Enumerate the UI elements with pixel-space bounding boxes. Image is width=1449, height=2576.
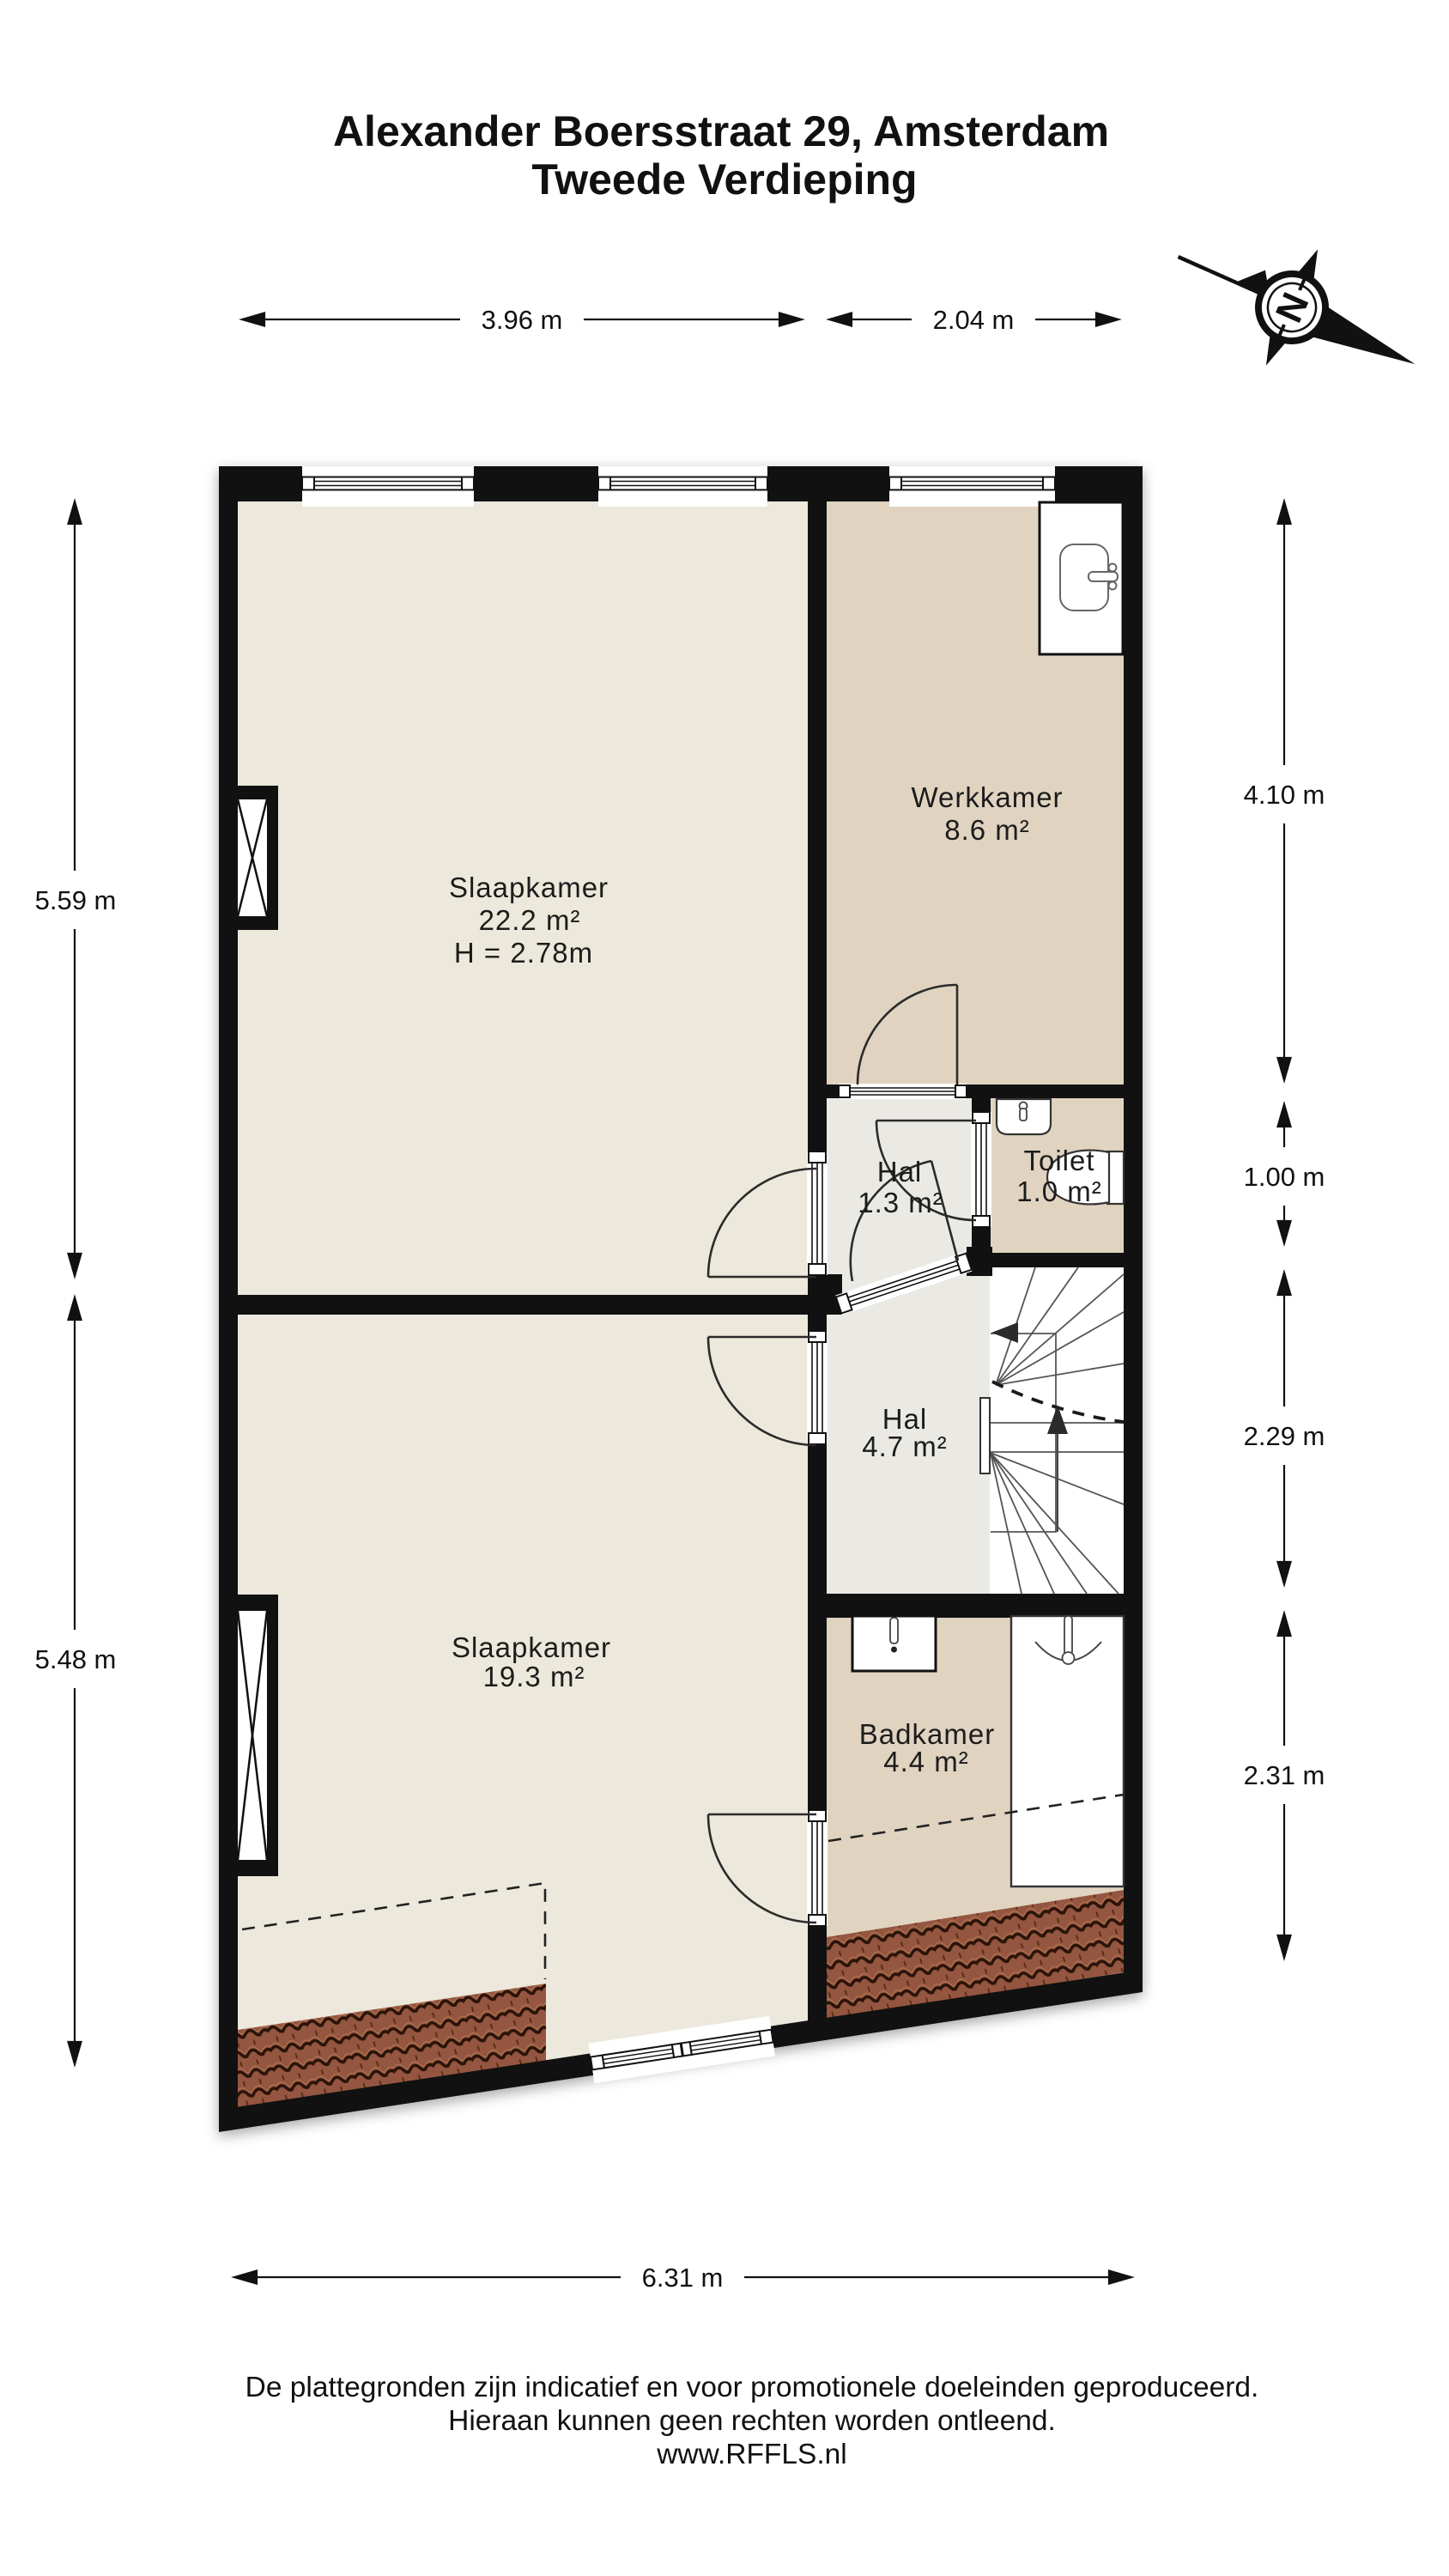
svg-text:5.59 m: 5.59 m: [35, 885, 117, 915]
svg-text:Toilet: Toilet: [1023, 1145, 1094, 1176]
svg-text:Hieraan kunnen geen rechten wo: Hieraan kunnen geen rechten worden ontle…: [448, 2405, 1056, 2437]
svg-text:8.6 m²: 8.6 m²: [944, 814, 1030, 846]
svg-text:4.10 m: 4.10 m: [1244, 780, 1325, 810]
svg-text:H = 2.78m: H = 2.78m: [454, 937, 593, 969]
svg-text:Tweede Verdieping: Tweede Verdieping: [531, 155, 917, 204]
svg-text:6.31 m: 6.31 m: [642, 2263, 724, 2293]
svg-text:3.96 m: 3.96 m: [482, 305, 563, 335]
svg-text:2.04 m: 2.04 m: [933, 305, 1015, 335]
svg-text:1.0 m²: 1.0 m²: [1016, 1176, 1102, 1207]
svg-text:Slaapkamer: Slaapkamer: [449, 872, 609, 903]
svg-text:De plattegronden zijn indicati: De plattegronden zijn indicatief en voor…: [246, 2372, 1259, 2403]
svg-text:Alexander Boersstraat 29, Amst: Alexander Boersstraat 29, Amsterdam: [333, 107, 1109, 155]
svg-text:Werkkamer: Werkkamer: [911, 781, 1063, 813]
svg-text:4.4 m²: 4.4 m²: [883, 1746, 969, 1777]
svg-text:19.3 m²: 19.3 m²: [483, 1661, 585, 1692]
svg-text:4.7 m²: 4.7 m²: [862, 1431, 948, 1462]
svg-text:Hal: Hal: [877, 1156, 923, 1188]
svg-text:5.48 m: 5.48 m: [35, 1644, 117, 1674]
svg-text:1.00 m: 1.00 m: [1244, 1162, 1325, 1192]
svg-text:2.29 m: 2.29 m: [1244, 1421, 1325, 1451]
svg-text:Slaapkamer: Slaapkamer: [452, 1631, 611, 1663]
svg-text:www.RFFLS.nl: www.RFFLS.nl: [656, 2439, 847, 2470]
svg-text:2.31 m: 2.31 m: [1244, 1760, 1325, 1790]
svg-text:22.2 m²: 22.2 m²: [479, 904, 581, 936]
svg-text:1.3 m²: 1.3 m²: [858, 1187, 943, 1218]
